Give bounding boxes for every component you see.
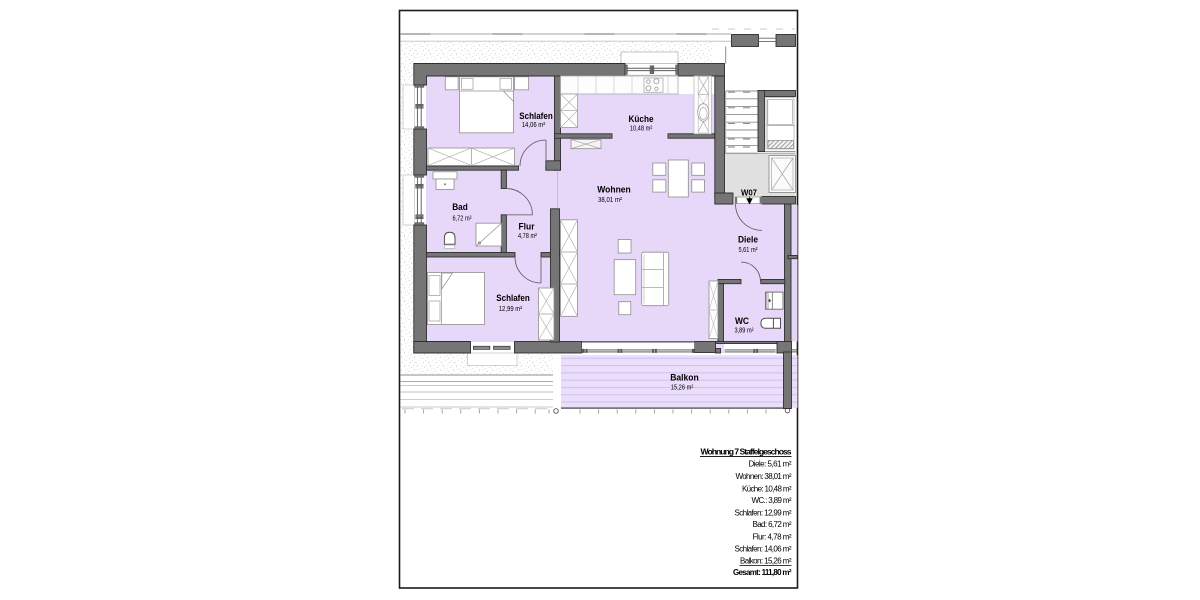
svg-text:6,72 m²: 6,72 m² [453,213,472,222]
svg-text:Diele: Diele [738,235,758,246]
svg-text:WC.: 3,89 m²: WC.: 3,89 m² [752,496,792,505]
svg-text:Balkon: Balkon [670,372,699,382]
svg-text:Schlafen: Schlafen [496,293,530,304]
svg-text:Wohnung 7 Staffelgeschoss: Wohnung 7 Staffelgeschoss [701,446,792,456]
svg-text:38,01 m²: 38,01 m² [598,195,622,204]
svg-text:Gesamt: 111,80 m²: Gesamt: 111,80 m² [733,568,792,577]
svg-text:Schlafen: 12,99 m²: Schlafen: 12,99 m² [735,508,792,517]
svg-text:3,89 m²: 3,89 m² [735,326,754,335]
svg-text:Schlafen: 14,06 m²: Schlafen: 14,06 m² [735,544,792,553]
svg-text:5,61 m²: 5,61 m² [739,245,758,254]
svg-text:10,48 m²: 10,48 m² [630,123,653,132]
svg-text:4,78 m²: 4,78 m² [518,231,537,240]
svg-text:Küche: 10,48 m²: Küche: 10,48 m² [742,484,792,493]
svg-text:Flur: 4,78 m²: Flur: 4,78 m² [753,532,792,541]
svg-text:Wohnen: 38,01 m²: Wohnen: 38,01 m² [736,472,792,481]
svg-text:Bad: 6,72 m²: Bad: 6,72 m² [753,520,792,529]
svg-text:15,26 m²: 15,26 m² [671,382,694,391]
svg-text:Diele: 5,61 m²: Diele: 5,61 m² [749,459,792,468]
svg-text:Balkon: 15,26 m²: Balkon: 15,26 m² [740,556,792,565]
svg-text:14,06 m²: 14,06 m² [522,120,546,129]
svg-text:Bad: Bad [452,202,468,213]
svg-text:Wohnen: Wohnen [597,185,631,196]
svg-text:W07: W07 [741,188,758,197]
svg-text:12,99 m²: 12,99 m² [499,304,523,313]
